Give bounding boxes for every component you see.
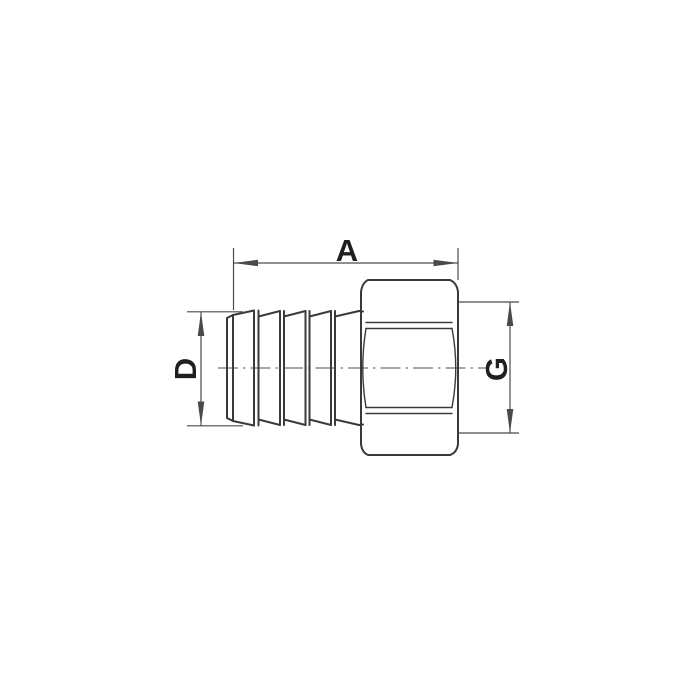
dimension-d-label: D: [168, 358, 203, 380]
barb-segment-top: [335, 311, 363, 317]
dimension-g-label: G: [479, 357, 514, 381]
dimension-g-arrow-up: [507, 302, 514, 326]
barb-segment-top: [259, 311, 281, 317]
barb-segment-bottom: [335, 420, 363, 426]
dimension-a-arrow-right: [434, 260, 459, 267]
barb-segment-bottom: [284, 420, 306, 426]
dimension-d: D: [168, 312, 243, 426]
barb-segment-bottom: [259, 420, 281, 426]
hose-barb-fitting-drawing: A D G: [0, 0, 700, 700]
dimension-g: G: [459, 302, 519, 433]
dimension-a-label: A: [336, 233, 358, 268]
barb-segment-top: [233, 311, 254, 316]
hex-nut-outline: [361, 280, 458, 455]
dimension-a: A: [234, 233, 459, 310]
dimension-g-arrow-down: [507, 409, 514, 433]
drawing-canvas: A D G: [0, 0, 700, 700]
dimension-d-arrow-up: [198, 312, 205, 336]
barb-segment-bottom: [233, 421, 254, 426]
barb-segment-bottom: [310, 420, 332, 426]
hex-nut: [361, 280, 458, 455]
dimension-d-arrow-down: [198, 402, 205, 426]
barb-segment-top: [310, 311, 332, 317]
dimension-a-arrow-left: [234, 260, 259, 267]
barb-segment-top: [284, 311, 306, 317]
